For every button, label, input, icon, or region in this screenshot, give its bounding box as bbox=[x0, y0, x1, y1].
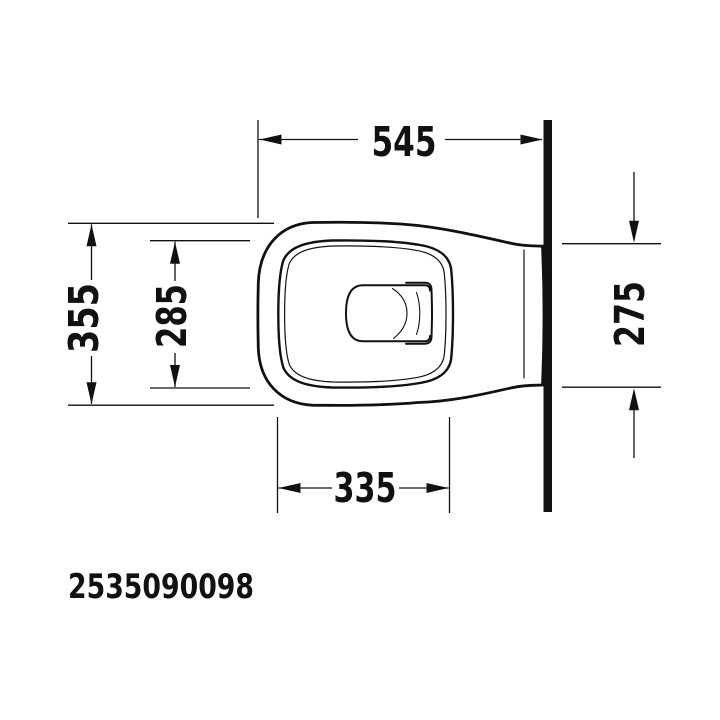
dimension-label-275: 275 bbox=[606, 281, 654, 347]
dimension-label-285: 285 bbox=[148, 284, 196, 348]
technical-drawing-canvas: 545 355 285 bbox=[0, 0, 720, 720]
arrowhead-left bbox=[279, 483, 301, 493]
drain-water-line bbox=[417, 293, 420, 335]
dimension-width-at-wall: 275 bbox=[562, 172, 661, 458]
drain-bracket bbox=[406, 283, 432, 344]
dimension-label-545: 545 bbox=[372, 118, 437, 166]
product-code: 2535090098 bbox=[68, 567, 254, 607]
toilet-plan-technical-drawing: 545 355 285 bbox=[0, 0, 720, 720]
dimension-inner-rim-width: 285 bbox=[148, 241, 250, 388]
arrowhead-up bbox=[87, 224, 97, 246]
dimension-front-to-wall: 545 bbox=[258, 118, 543, 218]
arrowhead-left bbox=[260, 135, 282, 145]
arrowhead-down bbox=[170, 365, 180, 387]
arrowhead-up bbox=[170, 242, 180, 264]
dimension-label-355: 355 bbox=[60, 283, 108, 353]
dimension-label-335: 335 bbox=[334, 464, 397, 512]
arrowhead-down bbox=[629, 221, 639, 243]
bowl-outer-outline bbox=[258, 222, 544, 405]
rim-outer-outline bbox=[278, 240, 453, 387]
arrowhead-right bbox=[521, 135, 543, 145]
arrowhead-right bbox=[427, 483, 449, 493]
dimension-rim-length: 335 bbox=[278, 417, 450, 513]
toilet-outline-group bbox=[258, 222, 544, 405]
arrowhead-up bbox=[629, 388, 639, 410]
drain-inner-arc bbox=[393, 289, 408, 339]
arrowhead-down bbox=[87, 382, 97, 404]
rim-inner-outline bbox=[285, 246, 446, 382]
